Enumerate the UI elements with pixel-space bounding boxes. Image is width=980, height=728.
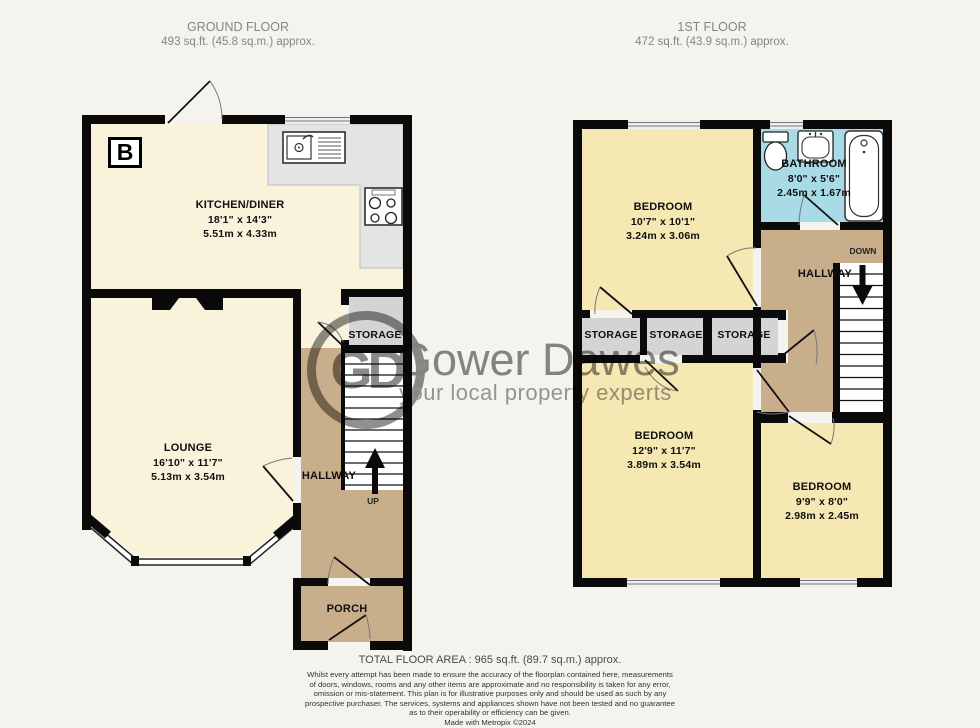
- first-floor-title-text: 1ST FLOOR: [635, 20, 788, 35]
- bedroom3-label: BEDROOM 9'9" x 8'0" 2.98m x 2.45m: [785, 480, 859, 524]
- ground-floor-area: 493 sq.ft. (45.8 sq.m.) approx.: [161, 35, 314, 50]
- bedroom3-name: BEDROOM: [785, 480, 859, 495]
- bedroom1-size-metric: 3.24m x 3.06m: [626, 229, 700, 244]
- credit-line: Made with Metropix ©2024: [305, 718, 675, 728]
- bedroom1-label: BEDROOM 10'7" x 10'1" 3.24m x 3.06m: [626, 200, 700, 244]
- ground-storage-label: STORAGE: [348, 329, 401, 341]
- disclaimer-line: omission or mis-statement. This plan is …: [305, 689, 675, 699]
- up-label: UP: [367, 496, 379, 506]
- bathroom-size-imperial: 8'0" x 5'6": [777, 172, 851, 187]
- bathroom-size-metric: 2.45m x 1.67m: [777, 186, 851, 201]
- disclaimer-line: Whilst every attempt has been made to en…: [305, 670, 675, 680]
- compass-marker: B: [108, 137, 142, 168]
- kitchen-label: KITCHEN/DINER 18'1" x 14'3" 5.51m x 4.33…: [196, 198, 285, 242]
- floorplan-page: GROUND FLOOR 493 sq.ft. (45.8 sq.m.) app…: [0, 0, 980, 728]
- bathroom-name: BATHROOM: [777, 157, 851, 172]
- bathroom-label: BATHROOM 8'0" x 5'6" 2.45m x 1.67m: [777, 157, 851, 201]
- bedroom1-name: BEDROOM: [626, 200, 700, 215]
- bedroom1-size-imperial: 10'7" x 10'1": [626, 215, 700, 230]
- kitchen-size-imperial: 18'1" x 14'3": [196, 213, 285, 228]
- stove-icon: [365, 188, 402, 225]
- lounge-size-imperial: 16'10" x 11'7": [151, 456, 225, 471]
- bedroom3-size-imperial: 9'9" x 8'0": [785, 495, 859, 510]
- footer: TOTAL FLOOR AREA : 965 sq.ft. (89.7 sq.m…: [305, 654, 675, 728]
- kitchen-window: [285, 115, 350, 124]
- bedroom3-size-metric: 2.98m x 2.45m: [785, 509, 859, 524]
- disclaimer-line: as to their operability or efficiency ca…: [305, 708, 675, 718]
- ground-hallway-label: HALLWAY: [302, 470, 356, 482]
- first-floor-title: 1ST FLOOR 472 sq.ft. (43.9 sq.m.) approx…: [635, 20, 788, 50]
- porch-label: PORCH: [327, 603, 368, 615]
- compass-letter: B: [117, 139, 134, 166]
- bedroom2-label: BEDROOM 12'9" x 11'7" 3.89m x 3.54m: [627, 429, 701, 473]
- down-label: DOWN: [850, 246, 877, 256]
- first-floor-area: 472 sq.ft. (43.9 sq.m.) approx.: [635, 35, 788, 50]
- bedroom2-name: BEDROOM: [627, 429, 701, 444]
- bedroom2-size-imperial: 12'9" x 11'7": [627, 444, 701, 459]
- lounge-label: LOUNGE 16'10" x 11'7" 5.13m x 3.54m: [151, 441, 225, 485]
- ground-floor-title-text: GROUND FLOOR: [161, 20, 314, 35]
- lounge-name: LOUNGE: [151, 441, 225, 456]
- bedroom2-size-metric: 3.89m x 3.54m: [627, 458, 701, 473]
- disclaimer-line: of doors, windows, rooms and any other i…: [305, 680, 675, 690]
- disclaimer-line: prospective purchaser. The services, sys…: [305, 699, 675, 709]
- first-hallway-label: HALLWAY: [798, 268, 852, 280]
- lounge-size-metric: 5.13m x 3.54m: [151, 470, 225, 485]
- ground-floor-title: GROUND FLOOR 493 sq.ft. (45.8 sq.m.) app…: [161, 20, 314, 50]
- kitchen-sink-icon: [283, 132, 345, 163]
- storage1-label: STORAGE: [584, 329, 637, 341]
- storage2-label: STORAGE: [649, 329, 702, 341]
- total-floor-area: TOTAL FLOOR AREA : 965 sq.ft. (89.7 sq.m…: [305, 654, 675, 666]
- kitchen-name: KITCHEN/DINER: [196, 198, 285, 213]
- storage3-label: STORAGE: [717, 329, 770, 341]
- kitchen-size-metric: 5.51m x 4.33m: [196, 227, 285, 242]
